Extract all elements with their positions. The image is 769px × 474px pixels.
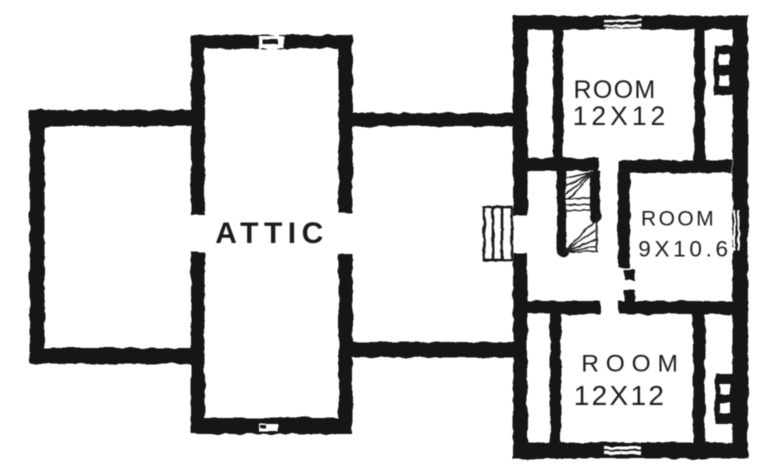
svg-text:ATTIC: ATTIC — [215, 217, 329, 250]
svg-text:ROOM: ROOM — [581, 351, 684, 378]
svg-text:12X12: 12X12 — [574, 380, 666, 411]
svg-text:ROOM: ROOM — [641, 208, 716, 231]
svg-text:ROOM: ROOM — [574, 76, 657, 104]
svg-text:9X10.6: 9X10.6 — [638, 237, 732, 262]
svg-text:12X12: 12X12 — [573, 101, 670, 131]
